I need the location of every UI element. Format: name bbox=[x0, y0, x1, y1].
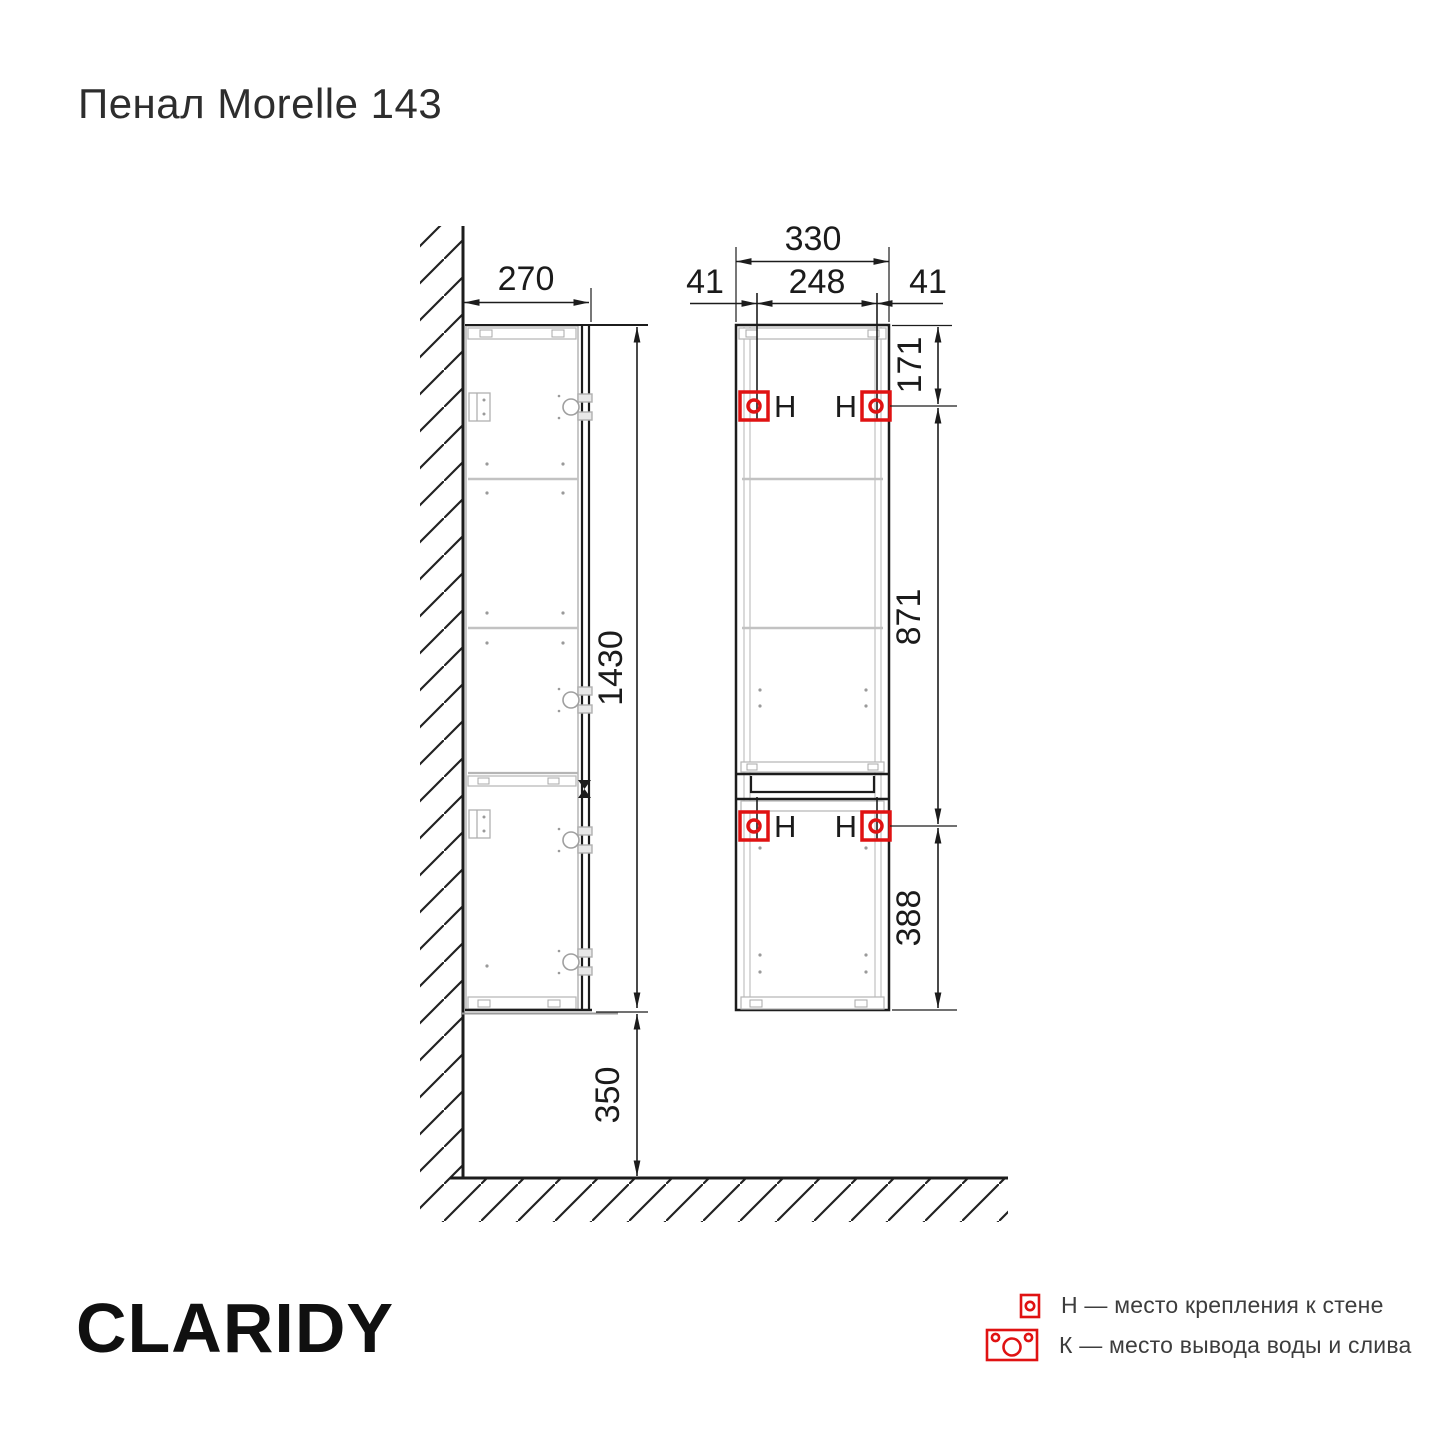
wall-bracket bbox=[469, 393, 490, 421]
mount-label: Н bbox=[835, 389, 857, 424]
brand-logo: CLARIDY bbox=[76, 1288, 394, 1368]
mount-label: Н bbox=[774, 389, 796, 424]
dimension-right-inset: 41 bbox=[909, 263, 947, 301]
dimension-floor-clearance: 350 bbox=[589, 1067, 627, 1124]
dimension-left-inset: 41 bbox=[686, 263, 724, 301]
technical-drawing: 270 1430 350 bbox=[0, 0, 1440, 1440]
legend-text-water-outlet: К — место вывода воды и слива bbox=[1059, 1332, 1412, 1359]
floor-hatch bbox=[420, 1178, 1008, 1222]
legend-row-wall-mount: Н — место крепления к стене bbox=[985, 1292, 1405, 1319]
dimension-mount-to-bottom: 388 bbox=[890, 890, 928, 947]
front-view: Н Н Н Н bbox=[736, 293, 890, 1010]
wall-bracket bbox=[469, 810, 490, 838]
water-outlet-icon bbox=[985, 1328, 1039, 1362]
wall-mount-icon bbox=[1019, 1293, 1041, 1319]
legend: Н — место крепления к стене К — место вы… bbox=[985, 1292, 1405, 1371]
wall-hatch bbox=[420, 226, 463, 1178]
dimension-mount-spacing: 248 bbox=[789, 263, 846, 301]
dimension-depth: 270 bbox=[498, 260, 555, 298]
dimension-mount-to-mount: 871 bbox=[890, 589, 928, 646]
mount-label: Н bbox=[835, 809, 857, 844]
dimension-height: 1430 bbox=[592, 630, 630, 706]
legend-text-wall-mount: Н — место крепления к стене bbox=[1061, 1292, 1384, 1319]
dimension-top-to-mount: 171 bbox=[891, 337, 929, 394]
dimension-overall-width: 330 bbox=[785, 220, 842, 258]
mount-label: Н bbox=[774, 809, 796, 844]
legend-row-water-outlet: К — место вывода воды и слива bbox=[985, 1328, 1405, 1362]
